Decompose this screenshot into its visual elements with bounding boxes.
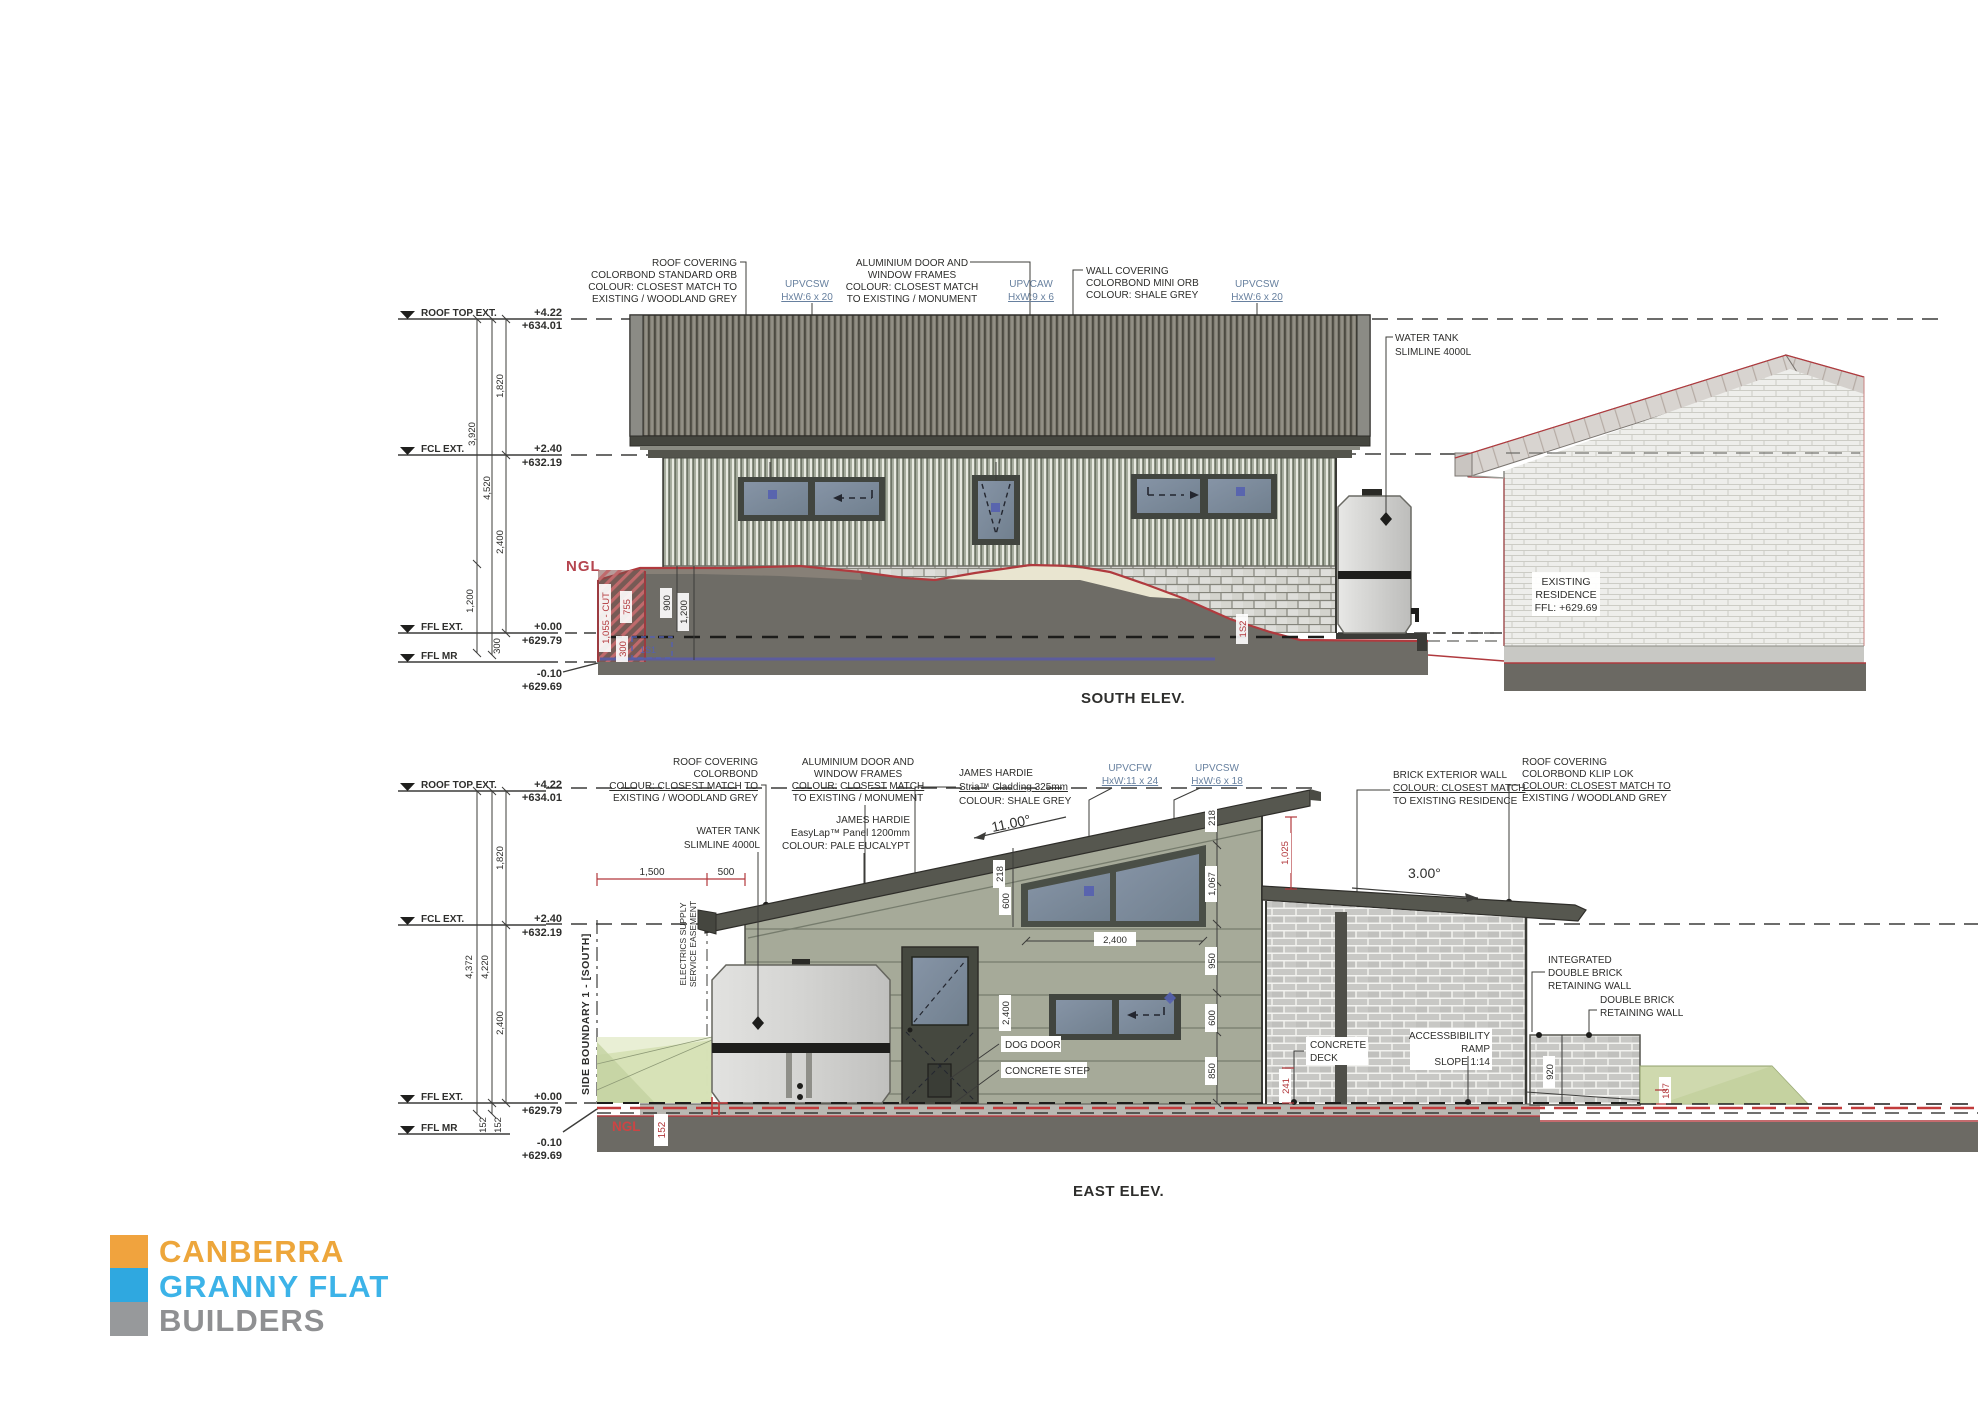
svg-text:HxW:9 x 6: HxW:9 x 6: [1008, 292, 1054, 303]
svg-text:+629.79: +629.79: [522, 635, 562, 647]
svg-text:-0.10: -0.10: [537, 668, 562, 680]
svg-text:1S1: 1S1: [640, 645, 656, 655]
svg-text:+629.69: +629.69: [522, 681, 562, 693]
svg-text:SLIMLINE 4000L: SLIMLINE 4000L: [1395, 347, 1472, 358]
svg-text:+629.79: +629.79: [522, 1105, 562, 1117]
svg-text:NGL: NGL: [612, 1119, 641, 1134]
svg-text:TO EXISTING / MONUMENT: TO EXISTING / MONUMENT: [847, 294, 977, 305]
svg-text:ROOF COVERING: ROOF COVERING: [673, 757, 758, 768]
svg-text:TO EXISTING / MONUMENT: TO EXISTING / MONUMENT: [793, 793, 923, 804]
svg-text:241: 241: [1281, 1078, 1292, 1094]
svg-text:+4.22: +4.22: [534, 779, 562, 791]
svg-text:HxW:6 x 18: HxW:6 x 18: [1191, 776, 1243, 787]
svg-text:COLORBOND MINI ORB: COLORBOND MINI ORB: [1086, 278, 1199, 289]
svg-text:SLOPE 1:14: SLOPE 1:14: [1434, 1057, 1490, 1068]
svg-text:755: 755: [622, 599, 633, 615]
svg-text:ROOF COVERING: ROOF COVERING: [652, 258, 737, 269]
svg-text:ALUMINIUM DOOR AND: ALUMINIUM DOOR AND: [856, 258, 968, 269]
svg-text:+2.40: +2.40: [534, 913, 562, 925]
svg-text:UPVCFW: UPVCFW: [1108, 763, 1152, 774]
svg-text:RETAINING WALL: RETAINING WALL: [1548, 981, 1632, 992]
svg-text:1S2: 1S2: [1238, 621, 1249, 638]
svg-text:COLOUR: CLOSEST MATCH: COLOUR: CLOSEST MATCH: [1393, 783, 1525, 794]
svg-text:TO EXISTING RESIDENCE: TO EXISTING RESIDENCE: [1393, 796, 1518, 807]
svg-text:DECK: DECK: [1310, 1053, 1338, 1064]
svg-text:152: 152: [657, 1121, 668, 1138]
svg-text:+2.40: +2.40: [534, 443, 562, 455]
svg-text:187: 187: [1661, 1083, 1672, 1099]
svg-text:RAMP: RAMP: [1461, 1044, 1490, 1055]
svg-text:FFL EXT.: FFL EXT.: [421, 622, 463, 633]
svg-text:COLORBOND: COLORBOND: [694, 769, 758, 780]
svg-text:+4.22: +4.22: [534, 307, 562, 319]
svg-text:UPVCSW: UPVCSW: [1235, 279, 1279, 290]
svg-text:1,200: 1,200: [679, 600, 690, 624]
svg-text:GRANNY FLAT: GRANNY FLAT: [159, 1269, 389, 1304]
svg-text:+0.00: +0.00: [534, 621, 562, 633]
svg-text:FCL EXT.: FCL EXT.: [421, 914, 464, 925]
svg-text:EXISTING / WOODLAND GREY: EXISTING / WOODLAND GREY: [613, 793, 758, 804]
svg-text:920: 920: [1545, 1064, 1556, 1080]
svg-text:1,200: 1,200: [465, 589, 476, 613]
svg-text:ALUMINIUM DOOR AND: ALUMINIUM DOOR AND: [802, 757, 914, 768]
svg-text:COLOUR: CLOSEST MATCH TO: COLOUR: CLOSEST MATCH TO: [1522, 781, 1671, 792]
svg-text:ROOF COVERING: ROOF COVERING: [1522, 757, 1607, 768]
svg-text:EXISTING / WOODLAND GREY: EXISTING / WOODLAND GREY: [1522, 793, 1667, 804]
svg-text:+634.01: +634.01: [522, 792, 562, 804]
svg-text:DOUBLE BRICK: DOUBLE BRICK: [1548, 968, 1623, 979]
svg-text:COLOUR: CLOSEST MATCH: COLOUR: CLOSEST MATCH: [846, 282, 978, 293]
svg-text:2,400: 2,400: [1103, 935, 1127, 946]
svg-text:2,400: 2,400: [495, 530, 506, 554]
svg-text:+634.01: +634.01: [522, 320, 562, 332]
svg-text:4,220: 4,220: [480, 955, 491, 979]
svg-text:+0.00: +0.00: [534, 1091, 562, 1103]
svg-text:COLOUR: CLOSEST MATCH TO: COLOUR: CLOSEST MATCH TO: [588, 282, 737, 293]
svg-text:850: 850: [1207, 1063, 1218, 1079]
svg-text:2,400: 2,400: [1001, 1001, 1012, 1025]
svg-text:RETAINING WALL: RETAINING WALL: [1600, 1008, 1684, 1019]
svg-text:300: 300: [618, 641, 629, 657]
svg-text:WINDOW FRAMES: WINDOW FRAMES: [868, 270, 957, 281]
svg-text:ROOF TOP EXT.: ROOF TOP EXT.: [421, 308, 497, 319]
svg-text:152: 152: [478, 1117, 489, 1133]
svg-text:WATER TANK: WATER TANK: [696, 826, 760, 837]
svg-text:1,055 - CUT: 1,055 - CUT: [601, 592, 612, 644]
svg-text:300: 300: [492, 638, 503, 654]
svg-text:ELECTRICS SUPPLY: ELECTRICS SUPPLY: [678, 902, 688, 985]
svg-text:SOUTH ELEV.: SOUTH ELEV.: [1081, 690, 1185, 707]
svg-text:-0.10: -0.10: [537, 1137, 562, 1149]
svg-text:1,820: 1,820: [495, 846, 506, 870]
svg-text:BUILDERS: BUILDERS: [159, 1303, 325, 1338]
svg-text:COLORBOND KLIP LOK: COLORBOND KLIP LOK: [1522, 769, 1634, 780]
svg-text:INTEGRATED: INTEGRATED: [1548, 955, 1612, 966]
svg-text:SERVICE EASEMENT: SERVICE EASEMENT: [688, 901, 698, 987]
svg-text:COLOUR: CLOSEST MATCH TO: COLOUR: CLOSEST MATCH TO: [609, 781, 758, 792]
svg-text:218: 218: [1207, 810, 1218, 826]
svg-text:ACCESSBIBILITY: ACCESSBIBILITY: [1409, 1031, 1490, 1042]
svg-text:NGL: NGL: [566, 558, 601, 575]
svg-text:JAMES HARDIE: JAMES HARDIE: [836, 815, 910, 826]
svg-text:WALL COVERING: WALL COVERING: [1086, 266, 1169, 277]
svg-text:1,820: 1,820: [495, 374, 506, 398]
svg-text:UPVCAW: UPVCAW: [1009, 279, 1053, 290]
svg-text:COLOUR: SHALE GREY: COLOUR: SHALE GREY: [1086, 290, 1199, 301]
svg-text:Stria™ Cladding 325mm: Stria™ Cladding 325mm: [959, 782, 1068, 793]
svg-text:COLORBOND STANDARD ORB: COLORBOND STANDARD ORB: [591, 270, 737, 281]
svg-text:HxW:11 x 24: HxW:11 x 24: [1102, 776, 1159, 787]
svg-text:EXISTING: EXISTING: [1541, 576, 1590, 588]
svg-text:DOUBLE BRICK: DOUBLE BRICK: [1600, 995, 1675, 1006]
svg-text:EXISTING / WOODLAND GREY: EXISTING / WOODLAND GREY: [592, 294, 737, 305]
svg-text:+632.19: +632.19: [522, 927, 562, 939]
svg-text:+629.69: +629.69: [522, 1150, 562, 1162]
svg-text:DOG DOOR: DOG DOOR: [1005, 1040, 1061, 1051]
svg-text:218: 218: [995, 866, 1006, 882]
svg-text:3,920: 3,920: [467, 422, 478, 446]
svg-text:1,067: 1,067: [1207, 872, 1218, 896]
svg-text:+632.19: +632.19: [522, 457, 562, 469]
svg-text:CONCRETE STEP: CONCRETE STEP: [1005, 1066, 1090, 1077]
svg-text:COLOUR: SHALE GREY: COLOUR: SHALE GREY: [959, 796, 1072, 807]
svg-text:CONCRETE: CONCRETE: [1310, 1040, 1366, 1051]
svg-text:ROOF TOP EXT.: ROOF TOP EXT.: [421, 780, 497, 791]
svg-text:HxW:6 x 20: HxW:6 x 20: [781, 292, 833, 303]
svg-text:COLOUR: PALE EUCALYPT: COLOUR: PALE EUCALYPT: [782, 841, 910, 852]
svg-text:UPVCSW: UPVCSW: [1195, 763, 1239, 774]
svg-text:3.00°: 3.00°: [1408, 865, 1441, 881]
svg-text:EAST ELEV.: EAST ELEV.: [1073, 1183, 1164, 1200]
svg-text:FFL EXT.: FFL EXT.: [421, 1092, 463, 1103]
svg-text:HxW:6 x 20: HxW:6 x 20: [1231, 292, 1283, 303]
svg-text:FFL MR: FFL MR: [421, 1123, 458, 1134]
svg-text:950: 950: [1207, 953, 1218, 969]
svg-text:900: 900: [662, 595, 673, 611]
svg-text:FFL: +629.69: FFL: +629.69: [1535, 602, 1598, 614]
svg-text:4,372: 4,372: [464, 955, 475, 979]
svg-text:FFL MR: FFL MR: [421, 651, 458, 662]
svg-text:1,025: 1,025: [1280, 841, 1291, 865]
svg-text:JAMES HARDIE: JAMES HARDIE: [959, 768, 1033, 779]
svg-text:600: 600: [1001, 893, 1012, 909]
svg-text:BRICK EXTERIOR WALL: BRICK EXTERIOR WALL: [1393, 770, 1508, 781]
svg-text:SLIMLINE 4000L: SLIMLINE 4000L: [684, 840, 761, 851]
svg-text:600: 600: [1207, 1010, 1218, 1026]
svg-text:152: 152: [493, 1117, 504, 1133]
svg-text:1,500: 1,500: [639, 867, 664, 878]
svg-text:CANBERRA: CANBERRA: [159, 1234, 344, 1269]
svg-text:WATER TANK: WATER TANK: [1395, 333, 1459, 344]
svg-text:2,400: 2,400: [495, 1011, 506, 1035]
svg-text:FCL EXT.: FCL EXT.: [421, 444, 464, 455]
svg-text:COLOUR: CLOSEST MATCH: COLOUR: CLOSEST MATCH: [792, 781, 924, 792]
svg-text:SIDE BOUNDARY 1 - [SOUTH]: SIDE BOUNDARY 1 - [SOUTH]: [580, 933, 592, 1095]
svg-text:500: 500: [718, 867, 735, 878]
svg-text:WINDOW FRAMES: WINDOW FRAMES: [814, 769, 903, 780]
svg-text:RESIDENCE: RESIDENCE: [1535, 589, 1596, 601]
svg-text:EasyLap™ Panel 1200mm: EasyLap™ Panel 1200mm: [791, 828, 910, 839]
svg-text:UPVCSW: UPVCSW: [785, 279, 829, 290]
svg-text:4,520: 4,520: [482, 476, 493, 500]
